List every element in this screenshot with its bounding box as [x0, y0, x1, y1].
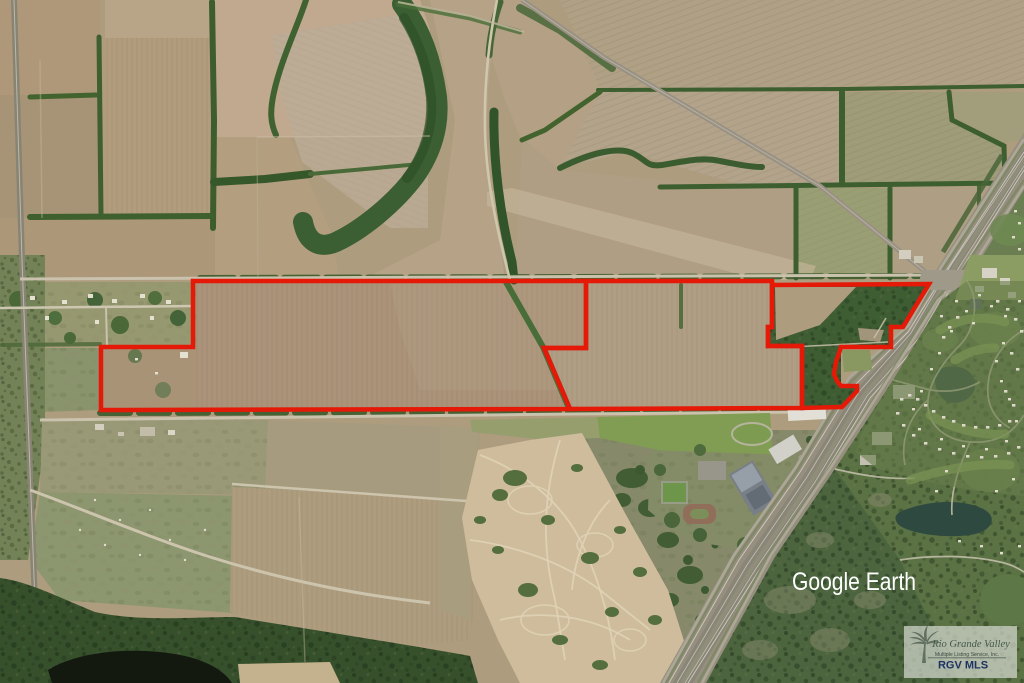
- svg-text:Multiple Listing Service, Inc.: Multiple Listing Service, Inc.: [935, 652, 999, 658]
- svg-text:Google Earth: Google Earth: [792, 568, 916, 596]
- svg-text:Rio Grande Valley: Rio Grande Valley: [931, 639, 1010, 650]
- svg-text:RGV MLS: RGV MLS: [938, 660, 988, 672]
